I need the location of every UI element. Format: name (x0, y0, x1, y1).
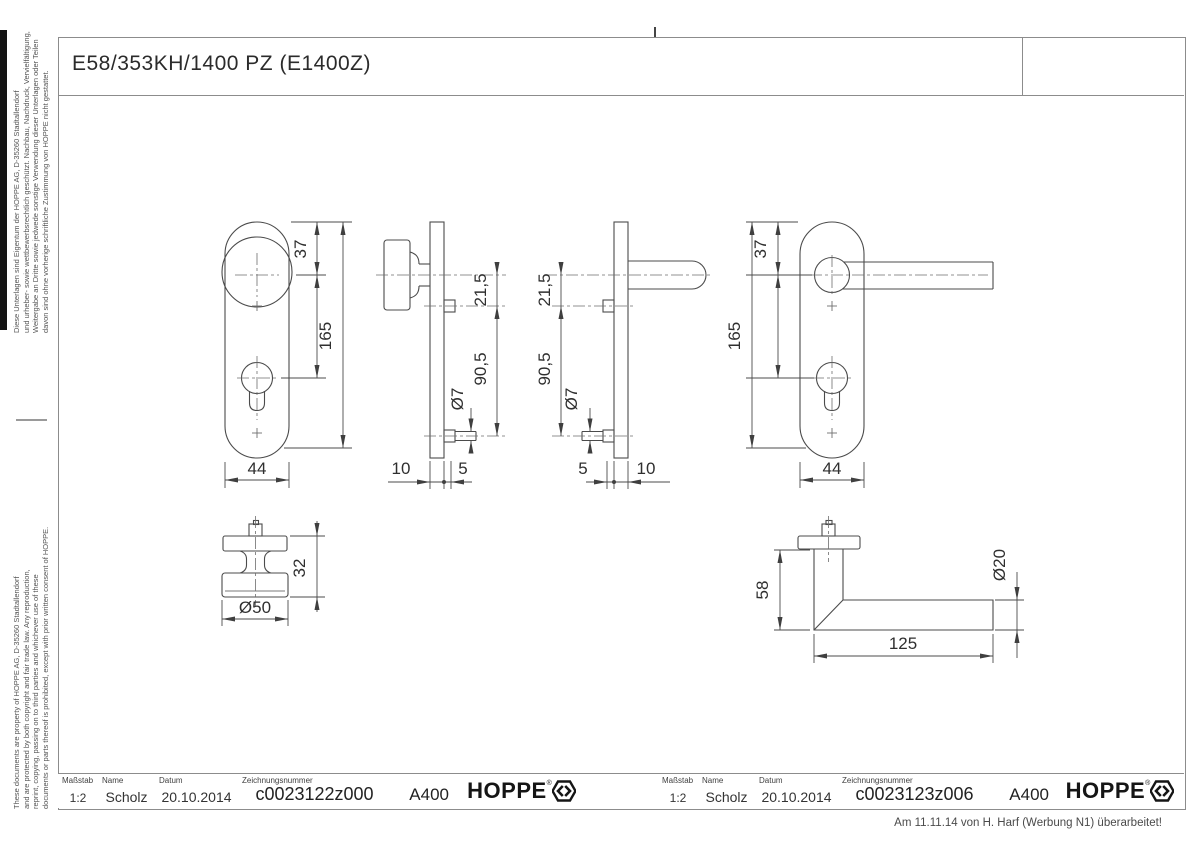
drawing-number: c0023123z006 (838, 784, 991, 805)
dim-lever-side-90-5: 90,5 (535, 352, 554, 385)
drawing-code: A400 (391, 785, 457, 805)
name-label: Name (698, 774, 755, 785)
titleblock1-scale-cell: Maßstab 1:2 (58, 774, 99, 808)
dim-knob-front-44: 44 (248, 459, 267, 478)
dim-knob-side-dia7: Ø7 (448, 388, 467, 411)
dim-lever-front-44: 44 (823, 459, 842, 478)
dim-lever-side-5: 5 (578, 459, 587, 478)
drawing-code: A400 (991, 785, 1057, 805)
arrowheads (225, 222, 346, 483)
dim-lever-front-37: 37 (751, 240, 770, 259)
title-band: Maßstab 1:2 Name Scholz Datum 20.10.2014… (58, 773, 1184, 809)
revision-note: Am 11.11.14 von H. Harf (Werbung N1) übe… (894, 817, 1162, 829)
dim-lever-front-165: 165 (725, 322, 744, 350)
titleblock1-brand-cell: HOPPE® (457, 774, 587, 808)
name-value: Scholz (698, 789, 755, 805)
titleblock1-number-cell: Zeichnungsnummer c0023122z000 A400 (238, 774, 458, 808)
titleblock1-date-cell: Datum 20.10.2014 (155, 774, 239, 808)
dim-lever-detail-58: 58 (753, 581, 772, 600)
view-lever-side: 21,5 90,5 Ø7 5 10 (535, 222, 712, 489)
dim-lever-side-10: 10 (637, 459, 656, 478)
dim-knob-side-90-5: 90,5 (471, 352, 490, 385)
dim-knob-side-10: 10 (392, 459, 411, 478)
dim-knob-front-37: 37 (291, 240, 310, 259)
hoppe-logo-text: HOPPE (1066, 778, 1146, 804)
dim-knob-front-165: 165 (316, 322, 335, 350)
titleblock2-name-cell: Name Scholz (698, 774, 756, 808)
hoppe-hexagon-icon (1150, 780, 1174, 802)
view-lever-front: 37 165 44 (725, 222, 993, 488)
scale-label: Maßstab (658, 774, 698, 785)
scale-label: Maßstab (58, 774, 98, 785)
titleblock1-name-cell: Name Scholz (98, 774, 156, 808)
dim-lever-side-21-5: 21,5 (535, 273, 554, 306)
dim-knob-detail-32: 32 (290, 559, 309, 578)
dim-knob-detail-dia50: Ø50 (239, 598, 271, 617)
view-knob-detail: 32 Ø50 (222, 516, 325, 626)
titleblock2-scale-cell: Maßstab 1:2 (658, 774, 699, 808)
titleblock2-number-cell: Zeichnungsnummer c0023123z006 A400 (838, 774, 1058, 808)
date-value: 20.10.2014 (755, 789, 838, 805)
name-value: Scholz (98, 789, 155, 805)
dim-lever-detail-125: 125 (889, 634, 917, 653)
titleblock2-date-cell: Datum 20.10.2014 (755, 774, 839, 808)
dim-knob-side-21-5: 21,5 (471, 273, 490, 306)
hoppe-logo-text: HOPPE (467, 778, 547, 804)
name-label: Name (98, 774, 155, 785)
titleblock2-brand-cell: HOPPE® (1057, 774, 1183, 808)
date-value: 20.10.2014 (155, 789, 238, 805)
date-label: Datum (155, 774, 238, 785)
date-label: Datum (755, 774, 838, 785)
dim-knob-side-5: 5 (458, 459, 467, 478)
spacer-cell (586, 774, 659, 808)
dim-lever-side-dia7: Ø7 (562, 388, 581, 411)
technical-drawing: 37 165 44 (0, 0, 1200, 849)
view-knob-side: 21,5 90,5 Ø7 10 5 (376, 222, 506, 489)
registered-mark: ® (547, 780, 552, 787)
dim-lever-detail-dia20: Ø20 (990, 549, 1009, 581)
scale-value: 1:2 (58, 791, 98, 805)
hoppe-hexagon-icon (552, 780, 576, 802)
registered-mark: ® (1145, 780, 1150, 787)
view-lever-detail: 58 Ø20 125 (753, 516, 1024, 663)
drawing-number: c0023122z000 (238, 784, 391, 805)
scale-value: 1:2 (658, 791, 698, 805)
view-knob-front: 37 165 44 (222, 222, 352, 488)
